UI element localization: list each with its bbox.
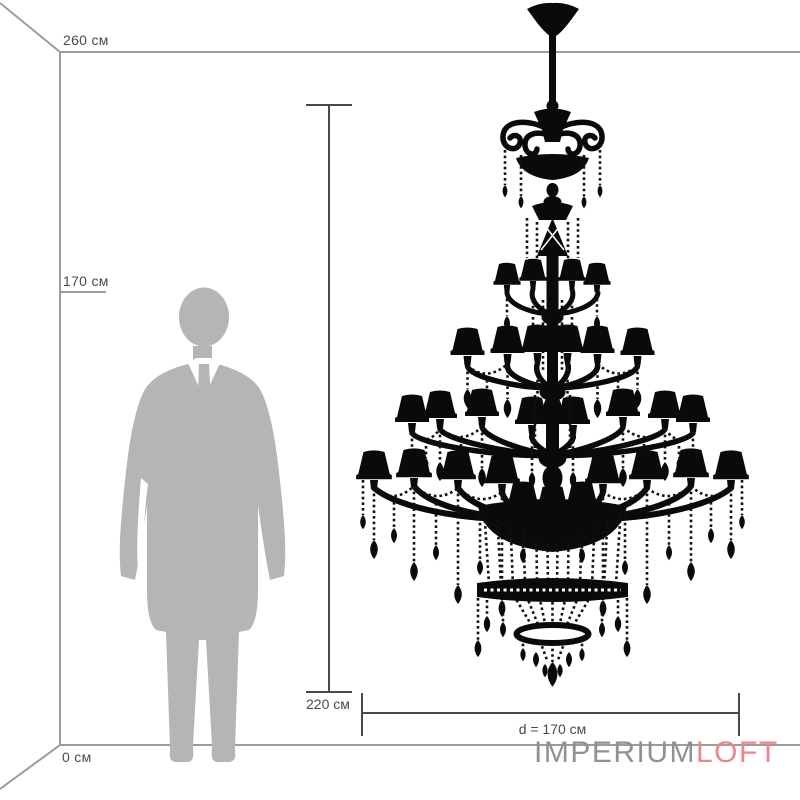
chandelier-illustration: [356, 3, 749, 687]
product-dimension-diagram: 260 см 170 см 0 см 220 см d = 170 см IMP…: [0, 0, 800, 800]
chandelier-crown: [503, 100, 603, 260]
human-silhouette: [120, 288, 285, 763]
silhouette-head: [179, 288, 229, 347]
diagram-canvas: [0, 0, 800, 800]
chandelier-canopy: [527, 3, 579, 104]
scale-label-ceiling: 260 см: [63, 32, 109, 48]
scale-label-floor: 0 см: [62, 749, 92, 765]
chandelier-basket: [475, 499, 631, 687]
height-dimension-label: 220 см: [306, 696, 350, 712]
height-dimension-line: [306, 105, 352, 692]
room-outline: [0, 3, 800, 789]
scale-label-person: 170 см: [63, 273, 109, 289]
logo-imperium: IMPERIUM: [534, 736, 696, 769]
brand-logo: IMPERIUMLOFT: [534, 736, 779, 770]
logo-loft: LOFT: [696, 736, 779, 769]
diameter-dimension-label: d = 170 см: [470, 721, 635, 737]
